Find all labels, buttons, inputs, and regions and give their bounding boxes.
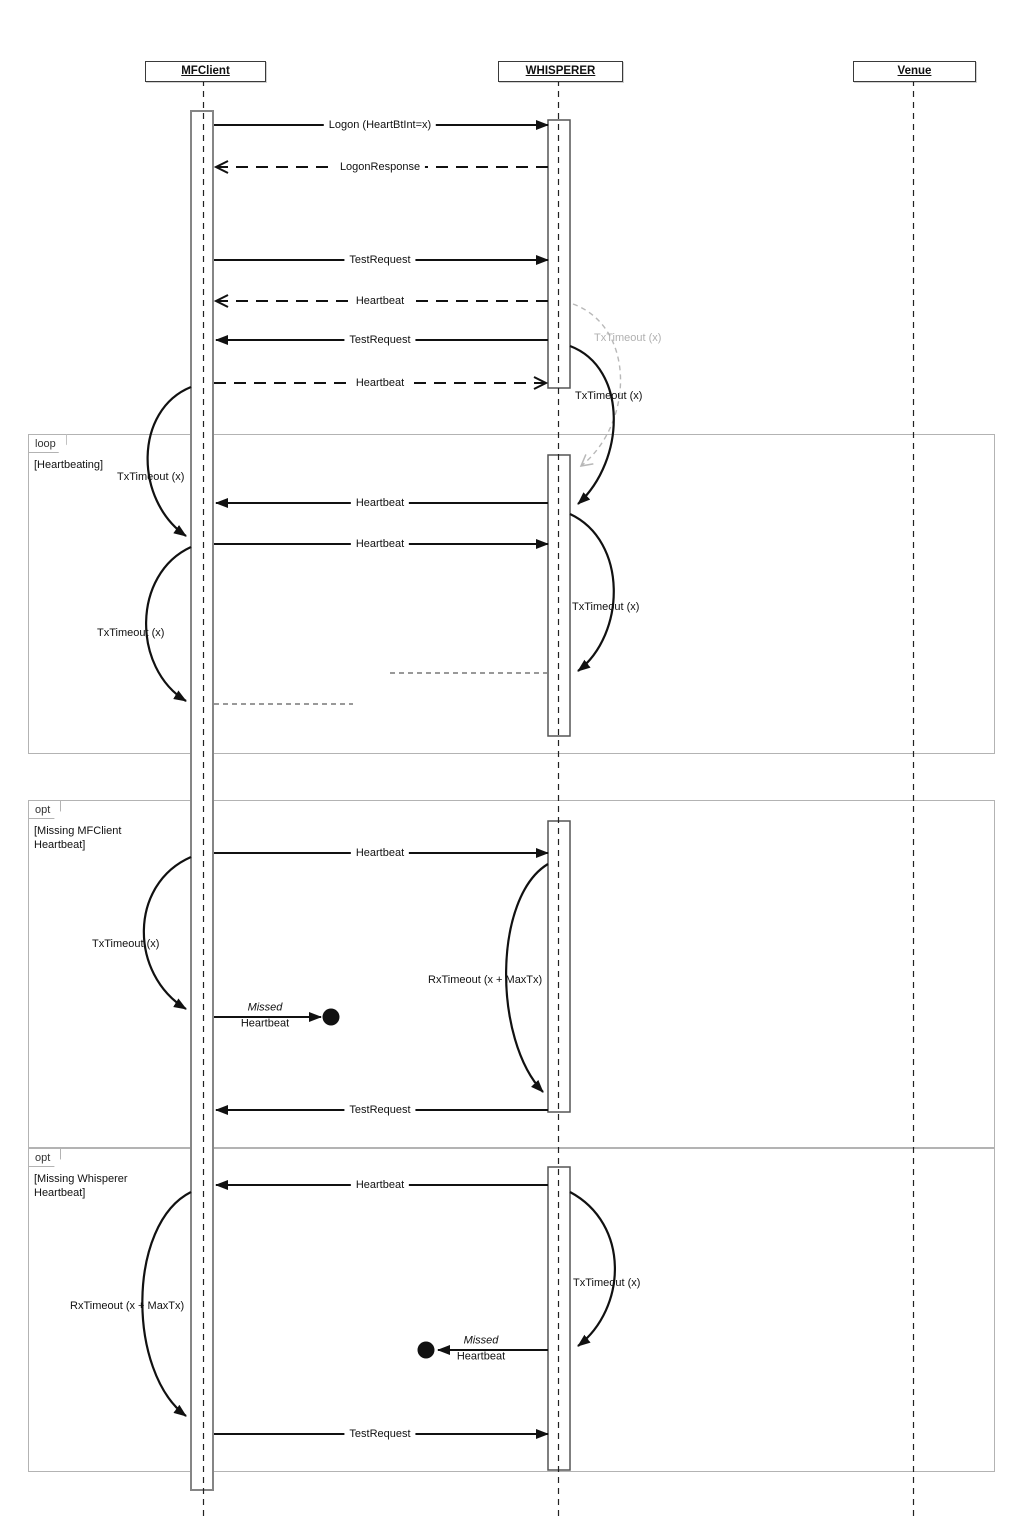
actor-mfclient: MFClient	[145, 61, 266, 82]
actor-venue: Venue	[853, 61, 976, 82]
timer-label-rx-timeout: RxTimeout (x + MaxTx)	[70, 1300, 184, 1312]
tx-timeout-arc-mfclient-opt1	[144, 857, 191, 1009]
timer-label-tx-timeout: TxTimeout (x)	[573, 1277, 640, 1289]
tx-timeout-arc-whisperer-entry	[570, 346, 614, 504]
actor-venue-label: Venue	[898, 65, 932, 77]
message-label-heartbeat: Heartbeat	[351, 538, 409, 550]
actor-mfclient-label: MFClient	[181, 65, 230, 77]
lost-label-missed: Missed	[241, 1002, 289, 1015]
timer-label-tx-timeout: TxTimeout (x)	[572, 601, 639, 613]
message-label-heartbeat: Heartbeat	[351, 847, 409, 859]
ghost-tx-timeout-arc	[573, 304, 621, 466]
actor-whisperer: WHISPERER	[498, 61, 623, 82]
message-label-test-request: TestRequest	[344, 1428, 415, 1440]
activation-mfclient	[191, 111, 213, 1490]
timer-label-tx-timeout: TxTimeout (x)	[117, 471, 184, 483]
lost-message-endpoint-opt2	[418, 1342, 435, 1359]
activation-whisperer-2	[548, 455, 570, 736]
message-label-test-request: TestRequest	[344, 334, 415, 346]
lost-message-label-opt1: Missed Heartbeat	[241, 1002, 289, 1031]
lost-label-heartbeat: Heartbeat	[241, 1018, 289, 1031]
lost-label-missed: Missed	[457, 1335, 505, 1348]
message-label-test-request: TestRequest	[344, 254, 415, 266]
lost-label-heartbeat: Heartbeat	[457, 1351, 505, 1364]
tx-timeout-arc-mfclient-loop-1	[148, 387, 191, 536]
timer-label-tx-timeout: TxTimeout (x)	[97, 627, 164, 639]
timer-label-rx-timeout: RxTimeout (x + MaxTx)	[428, 974, 542, 986]
message-label-heartbeat: Heartbeat	[351, 1179, 409, 1191]
actor-whisperer-label: WHISPERER	[526, 65, 596, 77]
message-label-heartbeat: Heartbeat	[351, 497, 409, 509]
message-label-logon-response: LogonResponse	[335, 161, 425, 173]
lost-message-endpoint-opt1	[323, 1009, 340, 1026]
message-label-test-request: TestRequest	[344, 1104, 415, 1116]
tx-timeout-arc-whisperer-opt2	[570, 1192, 615, 1346]
timer-label-tx-timeout-ghost: TxTimeout (x)	[594, 332, 661, 344]
timer-label-tx-timeout: TxTimeout (x)	[92, 938, 159, 950]
message-label-heartbeat: Heartbeat	[351, 377, 409, 389]
tx-timeout-arc-whisperer-loop	[570, 514, 614, 671]
message-label-logon: Logon (HeartBtInt=x)	[324, 119, 436, 131]
lost-message-label-opt2: Missed Heartbeat	[457, 1335, 505, 1364]
message-label-heartbeat: Heartbeat	[351, 295, 409, 307]
sequence-diagram: loop [Heartbeating] opt [Missing MFClien…	[0, 0, 1015, 1539]
timer-label-tx-timeout: TxTimeout (x)	[575, 390, 642, 402]
tx-timeout-arc-mfclient-loop-2	[146, 547, 191, 701]
